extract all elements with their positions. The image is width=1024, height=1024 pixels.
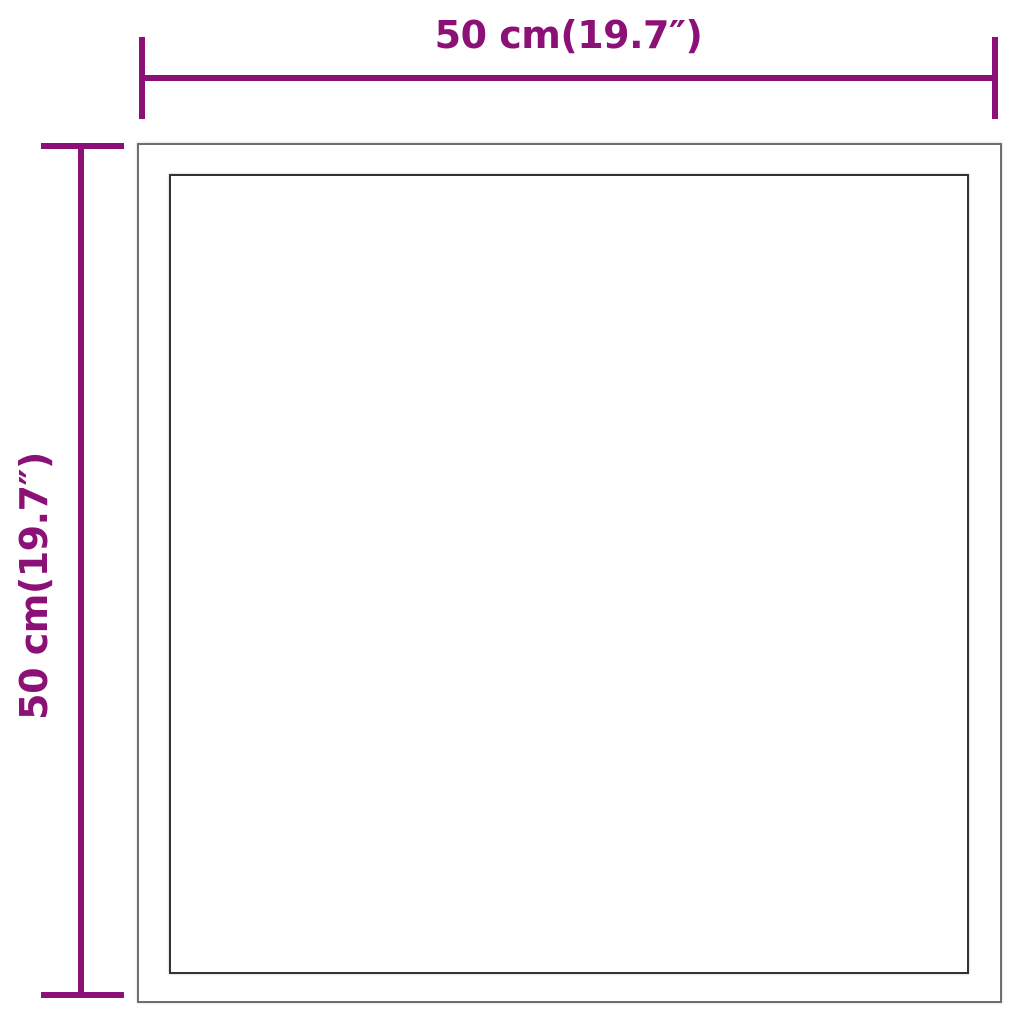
- width-dimension-right-tick: [992, 37, 998, 119]
- product-outer-frame: [137, 143, 1002, 1003]
- width-dimension-label: 50 cm(19.7″): [142, 16, 995, 54]
- width-dimension-left-tick: [139, 37, 145, 119]
- width-dimension-line: [142, 75, 995, 81]
- height-dimension-line: [78, 145, 84, 997]
- product-dimension-diagram: 50 cm(19.7″) 50 cm(19.7″): [0, 0, 1024, 1024]
- height-dimension-top-tick: [41, 143, 124, 149]
- height-dimension-bottom-tick: [41, 992, 124, 998]
- product-inner-frame: [169, 174, 969, 974]
- height-dimension-label: 50 cm(19.7″): [15, 452, 53, 720]
